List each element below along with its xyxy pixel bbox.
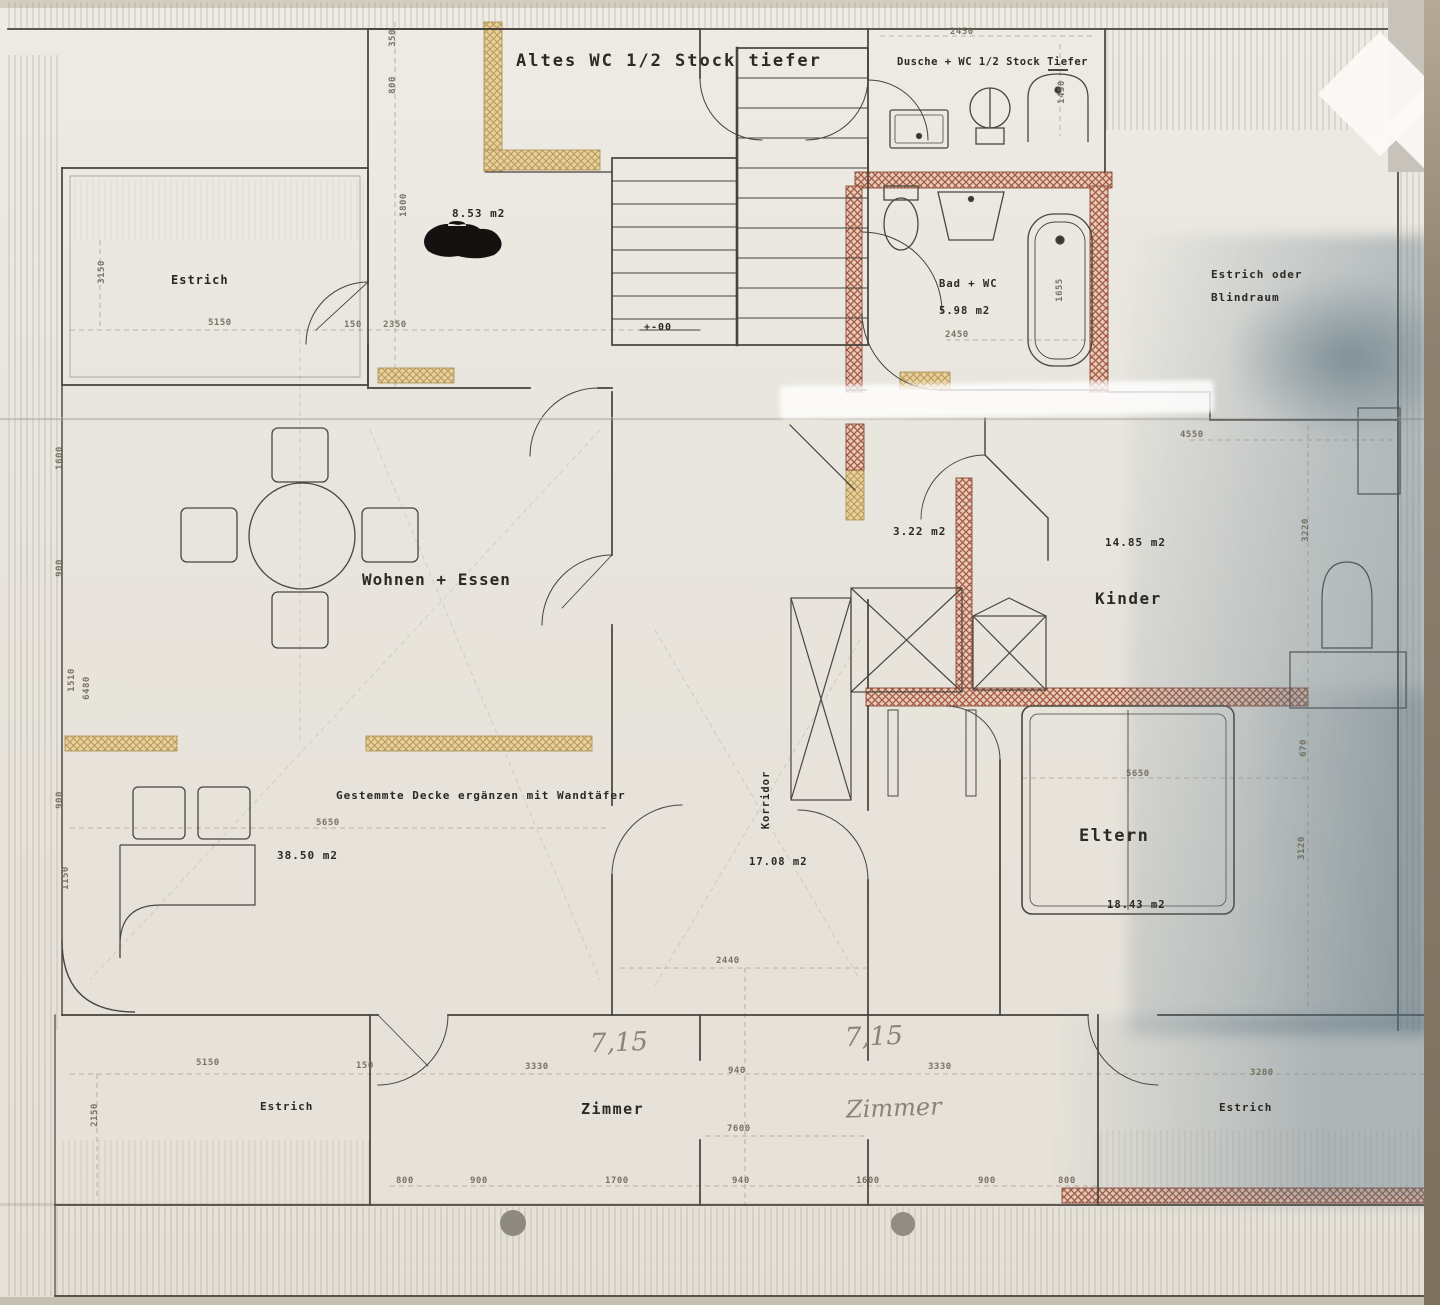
table-edge <box>1424 0 1440 1305</box>
photo-shadow-eltern <box>1245 690 1435 1020</box>
dining-table <box>181 428 418 648</box>
hole-dot-right <box>891 1212 915 1236</box>
floorplan-photo: Altes WC 1/2 Stock tiefer Dusche + WC 1/… <box>0 0 1440 1305</box>
redaction-blob <box>424 221 502 258</box>
photo-shadow-blob <box>1225 275 1430 440</box>
stairs <box>612 48 868 345</box>
paper-edge-bottom <box>0 1297 1440 1305</box>
bath-room-fixtures <box>884 186 1092 366</box>
sofa <box>62 787 255 1012</box>
photo-glare-strip <box>780 380 1214 419</box>
paper-edge-top <box>0 0 1440 8</box>
photo-shadow-bottom-right <box>1055 1016 1435 1204</box>
hole-dot-left <box>500 1210 526 1236</box>
